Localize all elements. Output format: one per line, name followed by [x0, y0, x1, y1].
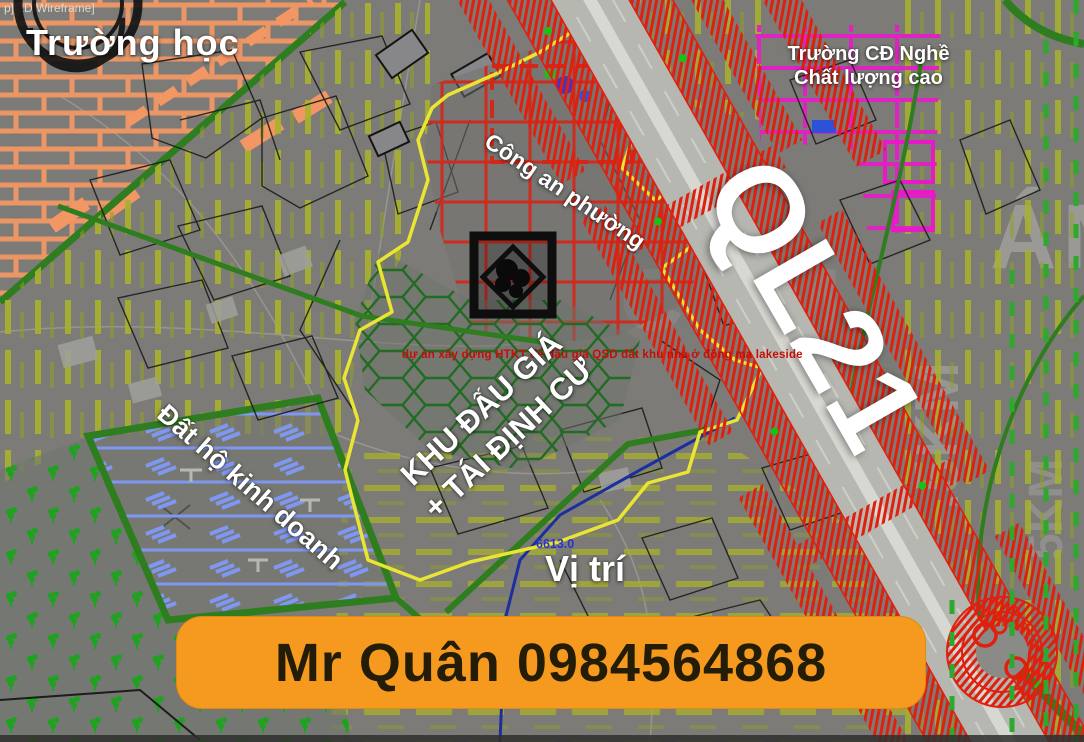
location-label: Vị trí	[500, 548, 670, 589]
contact-banner: Mr Quân 0984564868	[176, 616, 926, 709]
college-label: Trường CĐ Nghề Chất lượng cao	[766, 42, 971, 90]
college-label-line2: Chất lượng cao	[794, 67, 943, 89]
college-label-line1: Trường CĐ Nghề	[787, 43, 949, 65]
contact-banner-text: Mr Quân 0984564868	[275, 632, 827, 694]
roundabout	[947, 597, 1057, 707]
photo-edge	[0, 735, 1084, 742]
planning-map: ÁN C M .5KM 5KM	[0, 0, 1084, 742]
square-logo-watermark	[474, 236, 552, 314]
school-label: Trường học	[26, 22, 240, 63]
